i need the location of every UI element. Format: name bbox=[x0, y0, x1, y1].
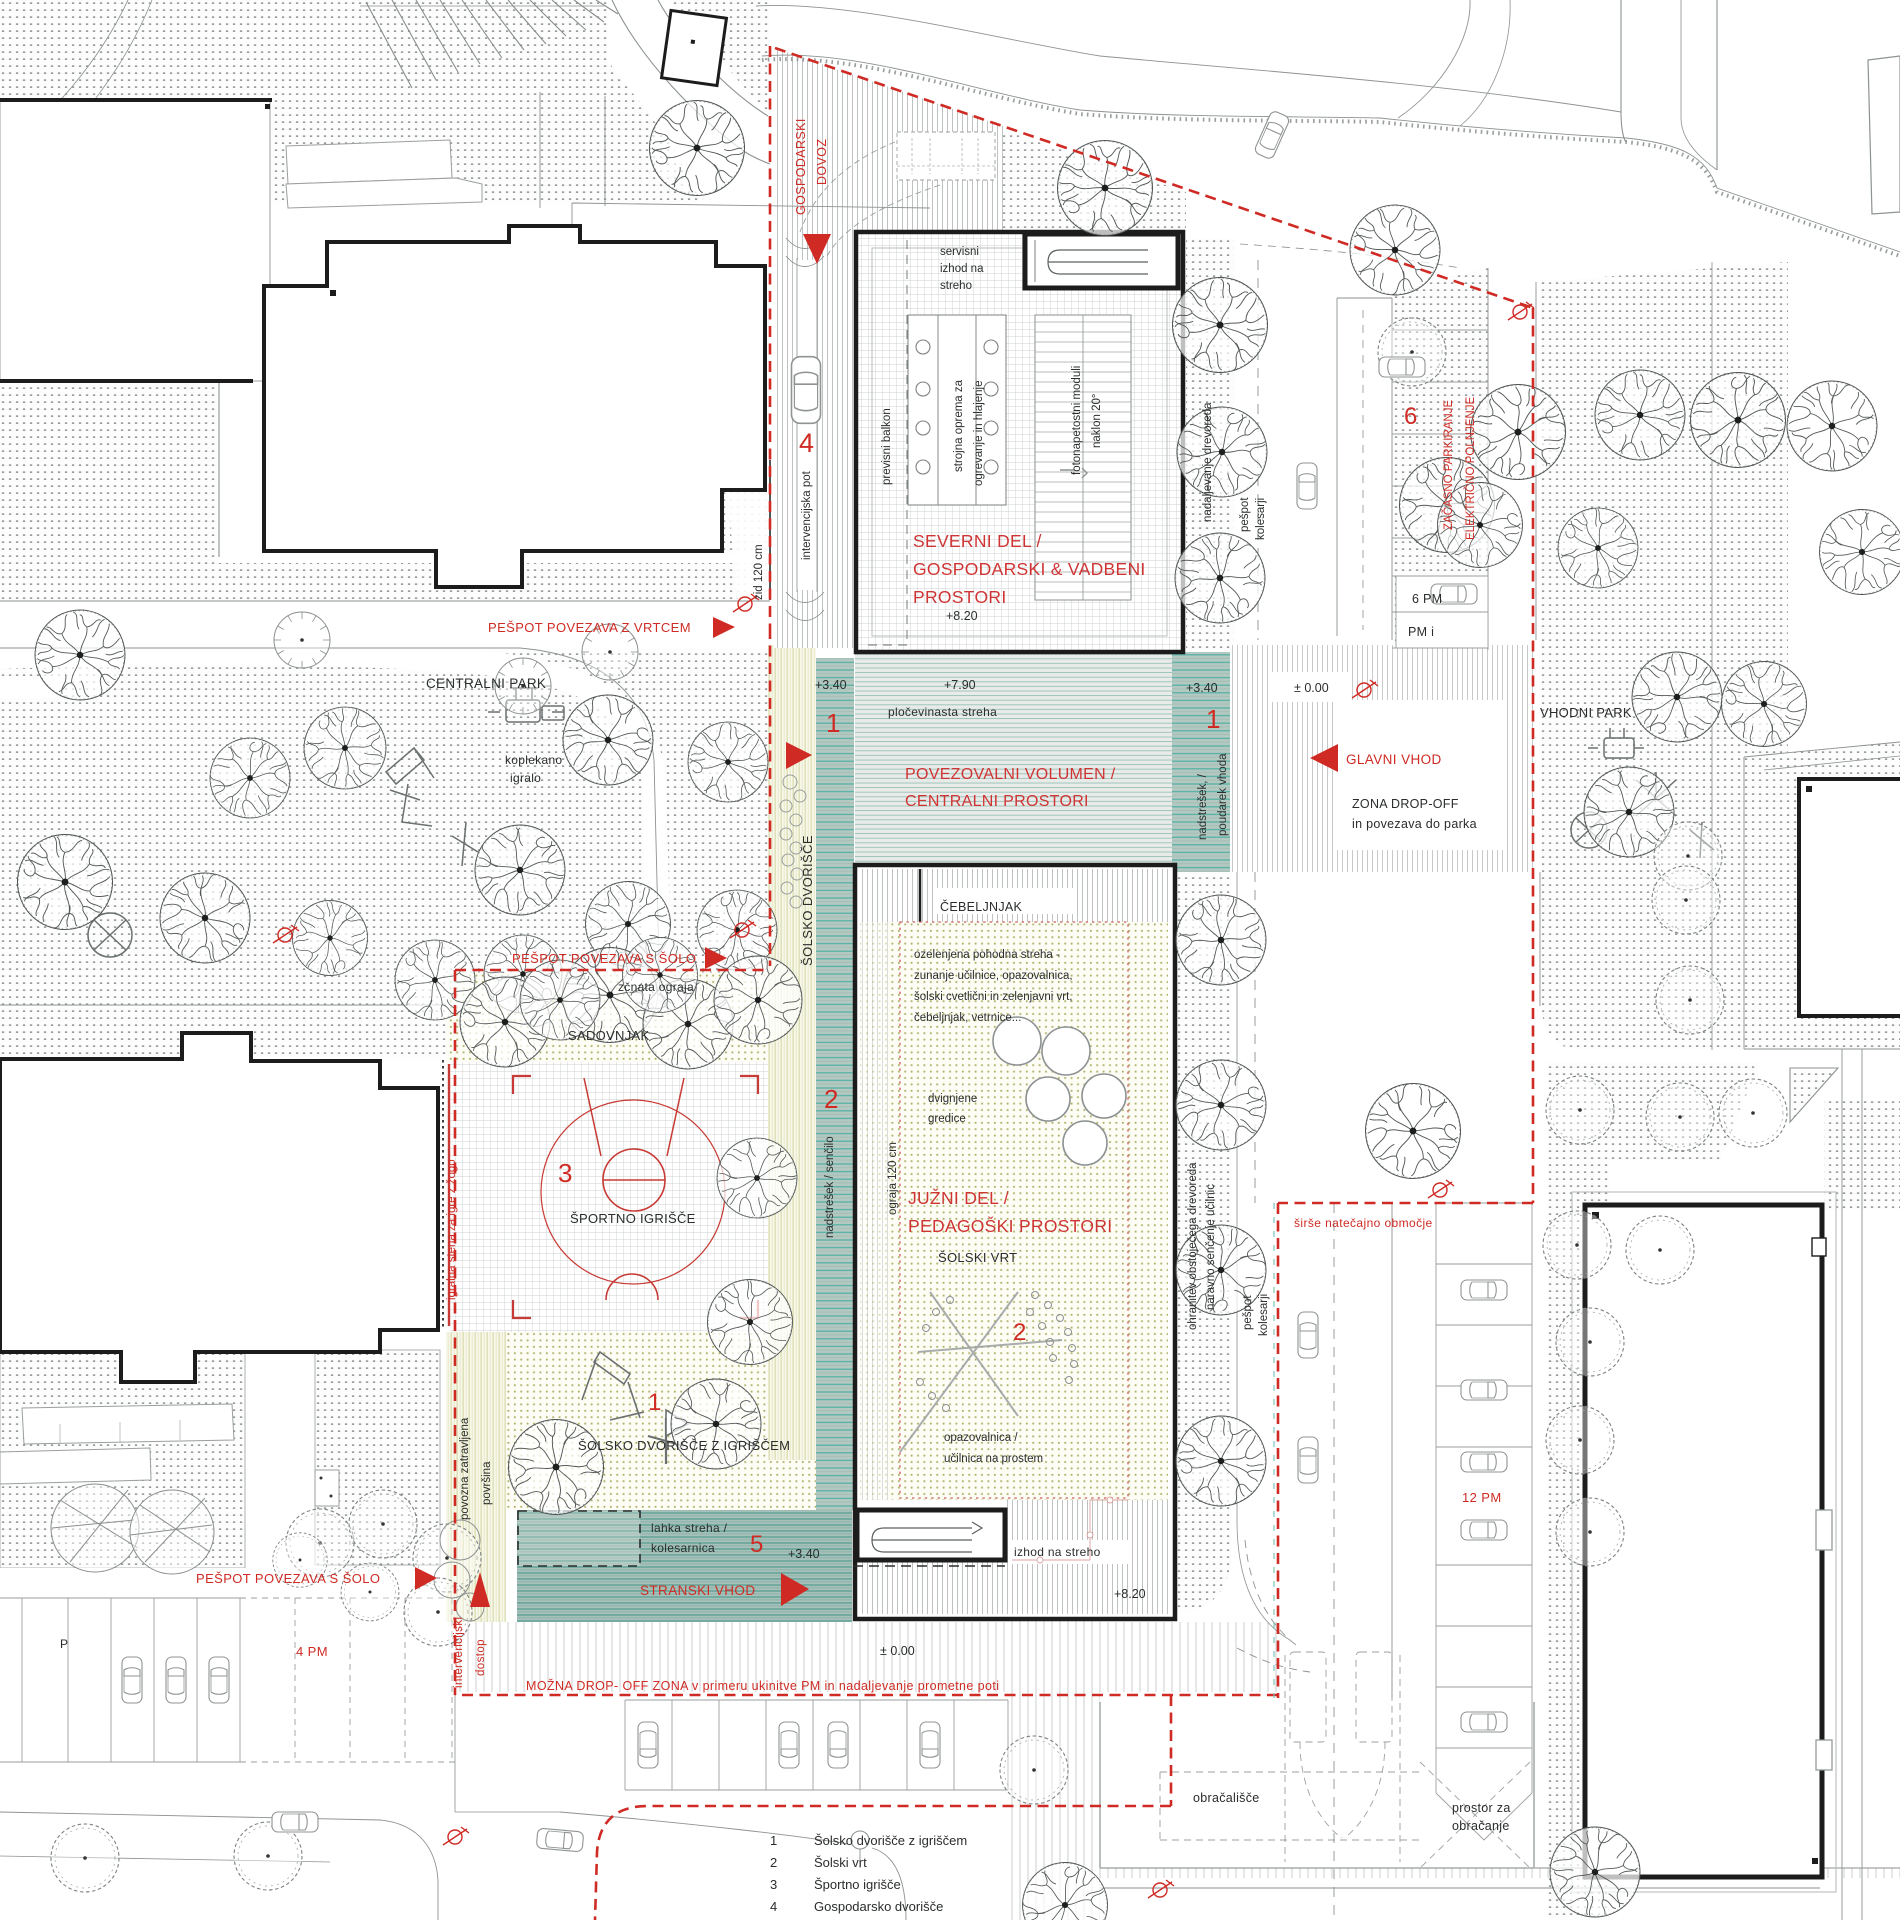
svg-text:koplekano: koplekano bbox=[505, 753, 562, 767]
svg-text:ozelenjena pohodna streha -: ozelenjena pohodna streha - bbox=[914, 949, 1060, 961]
svg-text:lahka streha /: lahka streha / bbox=[651, 1521, 728, 1535]
svg-text:širše natečajno območje: širše natečajno območje bbox=[1294, 1216, 1433, 1230]
svg-text:učilnica na prostem: učilnica na prostem bbox=[944, 1453, 1043, 1465]
svg-text:SEVERNI DEL /: SEVERNI DEL / bbox=[913, 531, 1042, 551]
svg-text:3: 3 bbox=[558, 1158, 572, 1188]
svg-text:šolski cvetlični in zelenjavni: šolski cvetlični in zelenjavni vrt, bbox=[914, 991, 1073, 1003]
svg-text:intervencijska pot: intervencijska pot bbox=[801, 470, 813, 560]
svg-text:Športno igrišče: Športno igrišče bbox=[814, 1877, 901, 1892]
svg-text:nadstrešek, /: nadstrešek, / bbox=[1197, 773, 1209, 840]
svg-text:in povezava do parka: in povezava do parka bbox=[1352, 817, 1477, 831]
svg-text:poudarek vhoda: poudarek vhoda bbox=[1217, 753, 1229, 836]
svg-text:2: 2 bbox=[1013, 1319, 1026, 1346]
svg-text:6 PM: 6 PM bbox=[1412, 592, 1442, 606]
svg-text:6: 6 bbox=[1404, 403, 1417, 430]
svg-text:nadstrešek / senčilo: nadstrešek / senčilo bbox=[824, 1136, 836, 1238]
svg-text:1: 1 bbox=[770, 1833, 777, 1848]
svg-text:ŠOLSKI VRT: ŠOLSKI VRT bbox=[938, 1250, 1017, 1265]
svg-text:PM i: PM i bbox=[1408, 625, 1434, 639]
svg-text:3: 3 bbox=[770, 1877, 777, 1892]
svg-text:pešpot: pešpot bbox=[1242, 1295, 1254, 1330]
svg-text:2: 2 bbox=[770, 1855, 777, 1870]
svg-text:intervencijski: intervencijski bbox=[453, 1617, 465, 1688]
svg-text:VHODNI PARK: VHODNI PARK bbox=[1540, 705, 1632, 720]
svg-text:naravno senčenje učilnic: naravno senčenje učilnic bbox=[1205, 1184, 1217, 1310]
svg-text:+3.40: +3.40 bbox=[1186, 681, 1218, 695]
svg-text:ŠOLSKO DVORIŠČE Z IGRIŠČEM: ŠOLSKO DVORIŠČE Z IGRIŠČEM bbox=[578, 1438, 790, 1453]
svg-text:zunanje učilnice, opazovalnica: zunanje učilnice, opazovalnica, bbox=[914, 970, 1073, 982]
svg-text:P: P bbox=[60, 1637, 68, 1651]
svg-text:izhod na streho: izhod na streho bbox=[1014, 1545, 1101, 1559]
svg-text:kolesarji: kolesarji bbox=[1255, 498, 1267, 540]
svg-text:nadaljevanje drevoreda: nadaljevanje drevoreda bbox=[1202, 402, 1214, 522]
svg-text:+3.40: +3.40 bbox=[788, 1547, 820, 1561]
svg-text:ohranitev obstoječega drevored: ohranitev obstoječega drevoreda bbox=[1187, 1162, 1199, 1330]
svg-text:dostop: dostop bbox=[475, 1639, 487, 1676]
svg-text:dvignjene: dvignjene bbox=[928, 1093, 977, 1105]
svg-text:Šolsko dvorišče z igriščem: Šolsko dvorišče z igriščem bbox=[814, 1833, 967, 1848]
svg-text:streho: streho bbox=[940, 280, 972, 292]
svg-text:+7.90: +7.90 bbox=[944, 678, 976, 692]
svg-text:ELEKTRIČNO POLNJENJE: ELEKTRIČNO POLNJENJE bbox=[1464, 397, 1477, 540]
svg-text:čebeljnjak, vetrnice...: čebeljnjak, vetrnice... bbox=[914, 1012, 1021, 1024]
svg-text:ZONA DROP-OFF: ZONA DROP-OFF bbox=[1352, 797, 1459, 811]
svg-text:PROSTORI: PROSTORI bbox=[913, 587, 1006, 607]
svg-text:STRANSKI VHOD: STRANSKI VHOD bbox=[640, 1583, 755, 1598]
svg-text:PEŠPOT POVEZAVA S ŠOLO: PEŠPOT POVEZAVA S ŠOLO bbox=[196, 1571, 380, 1586]
svg-text:naklon 20°: naklon 20° bbox=[1091, 394, 1103, 448]
svg-text:4: 4 bbox=[799, 428, 814, 458]
svg-text:SADOVNJAK: SADOVNJAK bbox=[568, 1028, 649, 1043]
svg-text:CENTRALNI PARK: CENTRALNI PARK bbox=[426, 676, 546, 691]
svg-text:POVEZOVALNI VOLUMEN /: POVEZOVALNI VOLUMEN / bbox=[905, 766, 1116, 783]
svg-text:Gospodarsko dvorišče: Gospodarsko dvorišče bbox=[814, 1899, 943, 1914]
svg-text:kolesarji: kolesarji bbox=[1258, 1294, 1270, 1336]
svg-text:12 PM: 12 PM bbox=[1462, 1490, 1502, 1505]
svg-text:povozna zatravljena: povozna zatravljena bbox=[459, 1417, 471, 1520]
svg-text:opazovalnica /: opazovalnica / bbox=[944, 1432, 1018, 1444]
svg-text:kolesarnica: kolesarnica bbox=[651, 1541, 715, 1555]
svg-text:obračanje: obračanje bbox=[1452, 1819, 1510, 1833]
svg-text:igralna stena za igre z žogo: igralna stena za igre z žogo bbox=[446, 1159, 458, 1300]
svg-text:GOSPODARSKI: GOSPODARSKI bbox=[794, 118, 808, 215]
svg-text:pločevinasta streha: pločevinasta streha bbox=[888, 705, 997, 719]
svg-text:izhod na: izhod na bbox=[940, 263, 984, 275]
svg-text:4 PM: 4 PM bbox=[296, 1644, 328, 1659]
svg-text:PEDAGOŠKI PROSTORI: PEDAGOŠKI PROSTORI bbox=[908, 1215, 1112, 1236]
svg-text:1: 1 bbox=[826, 708, 840, 738]
svg-text:1: 1 bbox=[648, 1389, 661, 1416]
svg-text:DOVOZ: DOVOZ bbox=[815, 139, 829, 185]
svg-text:zčnata ograja: zčnata ograja bbox=[618, 980, 694, 994]
svg-text:strojna oprema za: strojna oprema za bbox=[953, 379, 965, 472]
svg-text:Šolski vrt: Šolski vrt bbox=[814, 1855, 867, 1870]
svg-text:ŠPORTNO IGRIŠČE: ŠPORTNO IGRIŠČE bbox=[570, 1211, 696, 1226]
svg-text:1: 1 bbox=[1206, 704, 1220, 734]
svg-text:fotonapetostni moduli: fotonapetostni moduli bbox=[1071, 366, 1083, 475]
svg-text:igralo: igralo bbox=[510, 771, 541, 785]
svg-text:CENTRALNI PROSTORI: CENTRALNI PROSTORI bbox=[905, 793, 1089, 810]
svg-text:pešpot: pešpot bbox=[1239, 497, 1251, 532]
svg-text:zid 120 cm: zid 120 cm bbox=[753, 544, 765, 600]
svg-text:ZAČASNO PARKIRANJE: ZAČASNO PARKIRANJE bbox=[1442, 400, 1455, 530]
svg-text:2: 2 bbox=[824, 1084, 838, 1114]
svg-text:PEŠPOT POVEZAVA S ŠOLO: PEŠPOT POVEZAVA S ŠOLO bbox=[512, 951, 696, 966]
svg-text:ČEBELJNJAK: ČEBELJNJAK bbox=[940, 899, 1023, 914]
svg-text:PEŠPOT POVEZAVA Z VRTCEM: PEŠPOT POVEZAVA Z VRTCEM bbox=[488, 620, 691, 635]
svg-text:5: 5 bbox=[750, 1531, 763, 1558]
svg-text:previsni balkon: previsni balkon bbox=[881, 408, 893, 485]
svg-text:JUŽNI DEL /: JUŽNI DEL / bbox=[908, 1188, 1009, 1208]
svg-text:+8.20: +8.20 bbox=[946, 609, 978, 623]
svg-text:+3.40: +3.40 bbox=[815, 678, 847, 692]
svg-text:± 0.00: ± 0.00 bbox=[1294, 681, 1329, 695]
svg-text:servisni: servisni bbox=[940, 246, 979, 258]
svg-text:obračališče: obračališče bbox=[1193, 1791, 1260, 1805]
svg-text:prostor za: prostor za bbox=[1452, 1801, 1511, 1815]
svg-text:ograja 120 cm: ograja 120 cm bbox=[887, 1142, 899, 1215]
svg-text:4: 4 bbox=[770, 1899, 777, 1914]
svg-text:ogrevanje in hlajenje: ogrevanje in hlajenje bbox=[973, 381, 985, 487]
svg-text:+8.20: +8.20 bbox=[1114, 1587, 1146, 1601]
svg-text:± 0.00: ± 0.00 bbox=[880, 1644, 915, 1658]
svg-text:gredice: gredice bbox=[928, 1113, 966, 1125]
svg-text:ŠOLSKO DVORIŠČE: ŠOLSKO DVORIŠČE bbox=[800, 835, 815, 966]
svg-text:MOŽNA DROP- OFF ZONA v primeru: MOŽNA DROP- OFF ZONA v primeru ukinitve … bbox=[526, 1678, 999, 1693]
svg-text:površina: površina bbox=[481, 1461, 493, 1505]
svg-text:GOSPODARSKI & VADBENI: GOSPODARSKI & VADBENI bbox=[913, 559, 1146, 579]
svg-text:GLAVNI VHOD: GLAVNI VHOD bbox=[1346, 752, 1442, 767]
